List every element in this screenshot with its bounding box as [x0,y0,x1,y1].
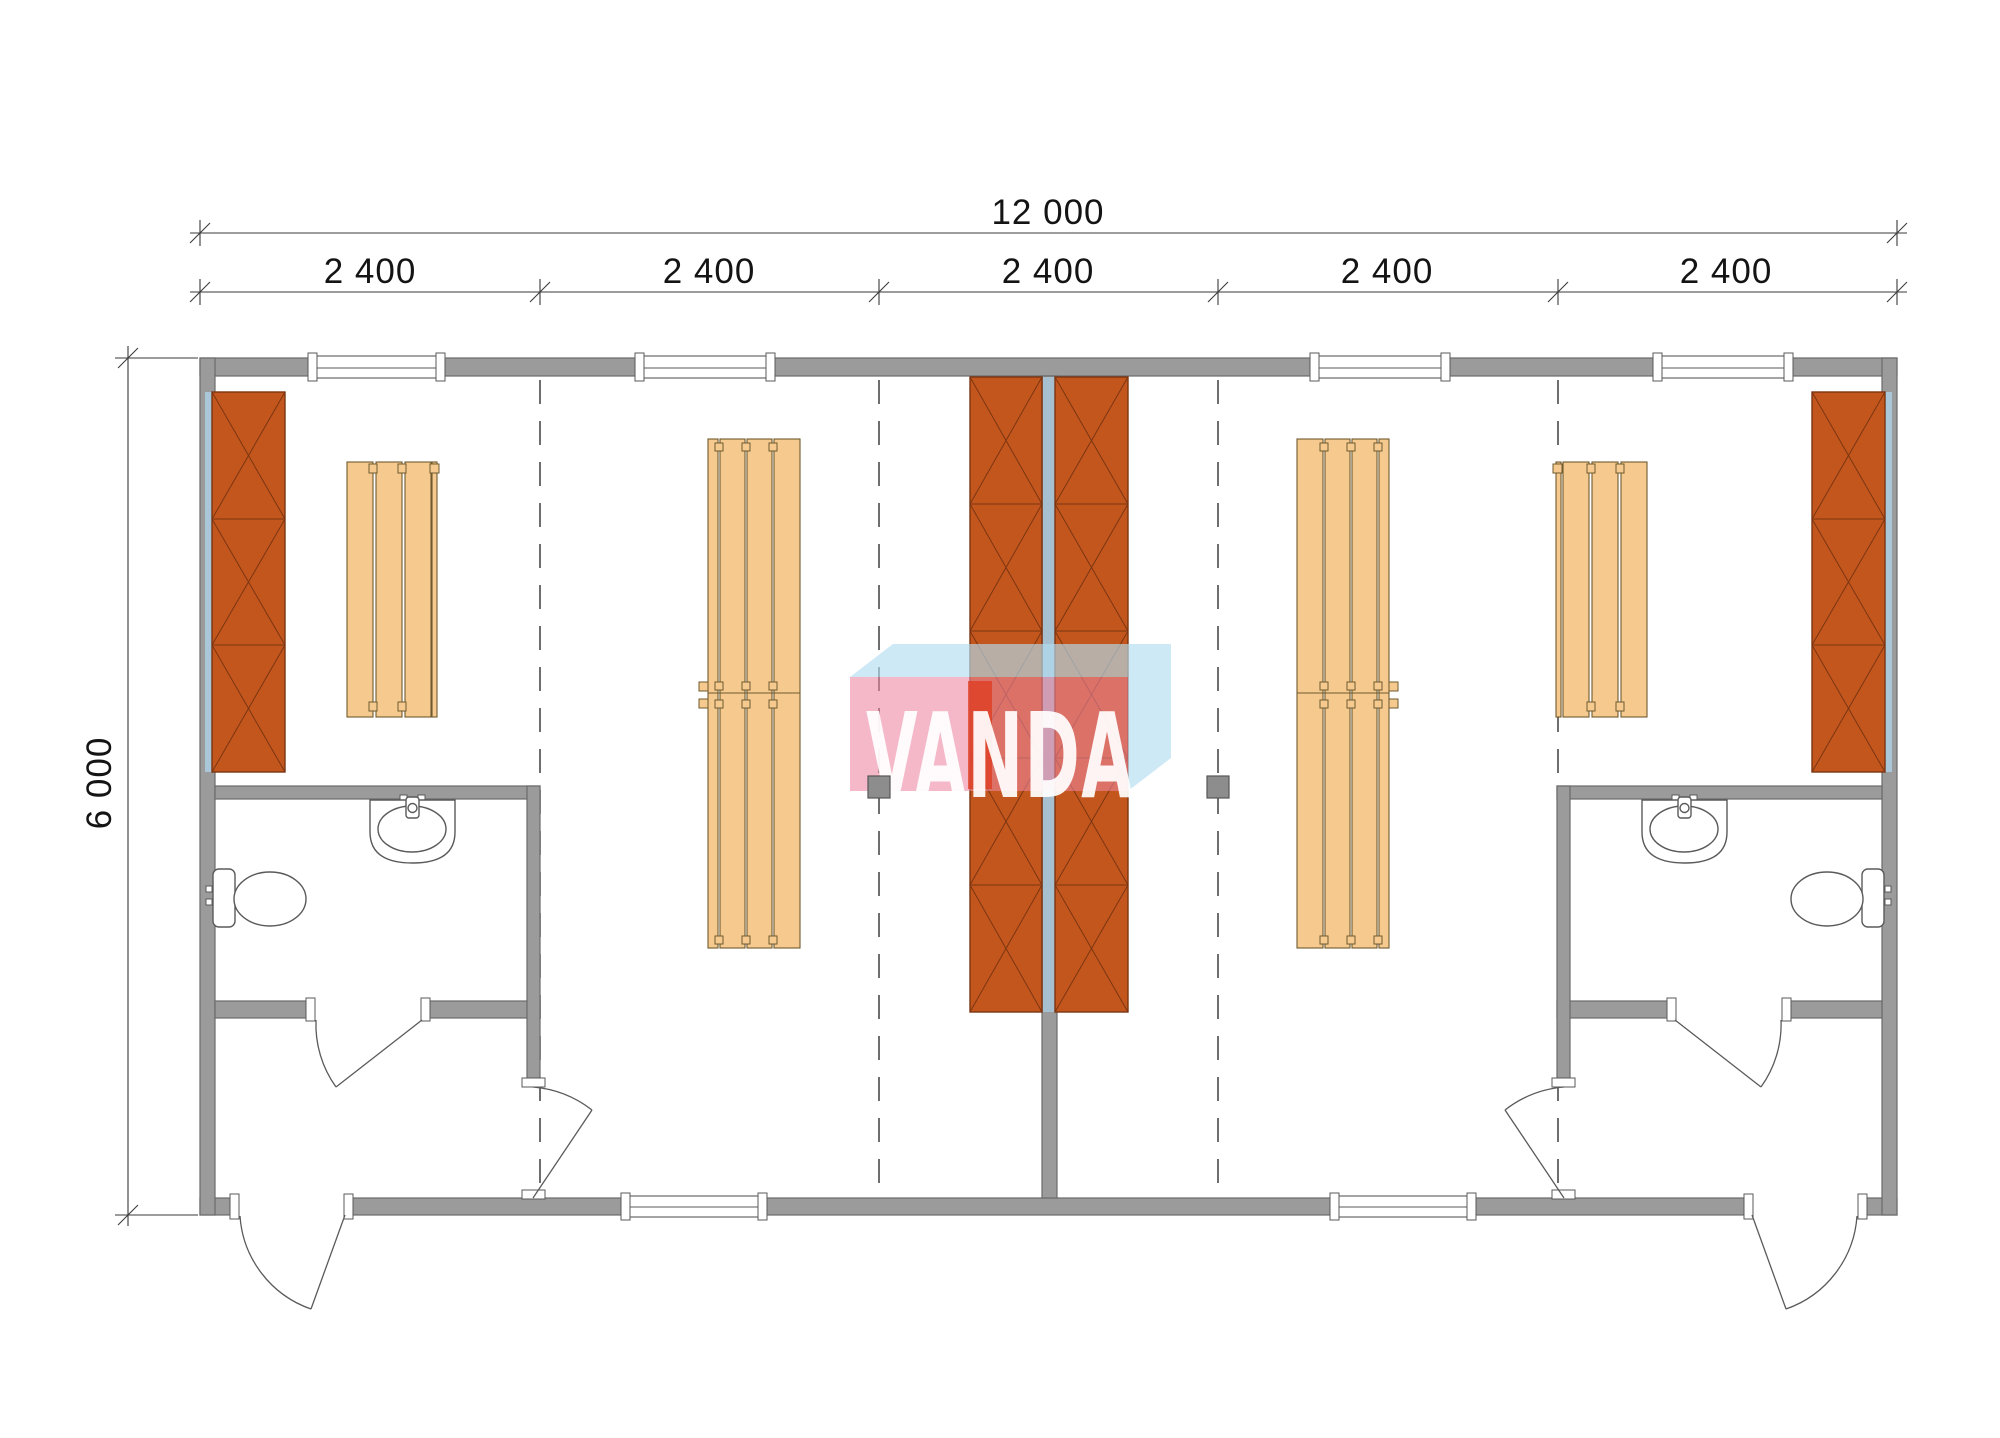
vestibule-door-right [1505,1078,1575,1199]
dimension-overall-width: 12 000 [190,193,1907,246]
locker-panel-right-wall [1812,392,1885,772]
window-top-2 [635,353,775,381]
wall-bath-south-right-a [1557,1001,1675,1018]
entry-door-right [1744,1194,1867,1309]
dimension-label-overall-width: 12 000 [991,193,1104,232]
locker-panel-left-wall [212,392,285,772]
floor-plan-canvas: VANDA 12 000 2 400 2 400 2 400 2 400 2 4… [0,0,2000,1438]
wall-bath-north-left [215,786,540,799]
dimension-bays: 2 400 2 400 2 400 2 400 2 400 [190,252,1907,305]
wall-bottom [200,1198,1897,1215]
bench-long-right [1297,439,1398,948]
window-bottom-1 [621,1193,767,1220]
window-top-3 [1310,353,1450,381]
entry-door-left [230,1194,353,1309]
dimension-label-bay-2: 2 400 [663,252,756,291]
floor-plan-drawing: VANDA 12 000 2 400 2 400 2 400 2 400 2 4… [0,0,2000,1438]
wall-vestibule-left [527,786,540,1085]
bench-long-left [699,439,800,948]
bench-short-left [347,462,439,717]
wall-bath-south-left-b [422,1001,540,1018]
wall-bath-south-left-a [215,1001,314,1018]
window-top-4 [1653,353,1793,381]
post-right [1207,776,1229,798]
window-bottom-2 [1330,1193,1476,1220]
dimension-label-height: 6 000 [80,737,119,830]
wall-vestibule-right [1557,786,1570,1085]
dimension-height: 6 000 [80,346,198,1226]
wall-bath-south-right-b [1783,1001,1882,1018]
wall-top [200,358,1897,376]
bathroom-door-left [306,998,430,1087]
wall-bath-north-right [1557,786,1882,799]
dimension-label-bay-5: 2 400 [1680,252,1773,291]
watermark: VANDA [850,644,1171,825]
watermark-text: VANDA [866,687,1134,825]
toilet-fixture-left [206,869,306,927]
toilet-fixture-right [1791,869,1891,927]
post-left [868,776,890,798]
watermark-box-top [850,644,1171,677]
sink-fixture-left [370,795,455,863]
bench-short-right [1553,462,1647,717]
vestibule-door-left [522,1078,592,1199]
sink-fixture-right [1642,795,1727,863]
window-top-1 [308,353,445,381]
bathroom-door-right [1667,998,1791,1087]
dimension-label-bay-3: 2 400 [1002,252,1095,291]
dimension-label-bay-1: 2 400 [324,252,417,291]
dimension-label-bay-4: 2 400 [1341,252,1434,291]
